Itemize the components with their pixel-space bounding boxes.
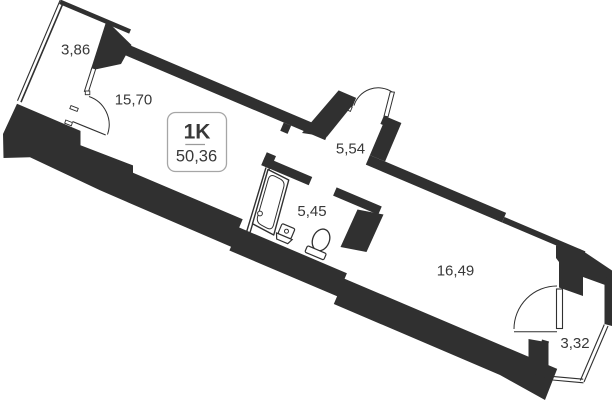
svg-text:16,49: 16,49	[437, 262, 475, 279]
svg-text:3,86: 3,86	[61, 42, 90, 59]
svg-text:5,54: 5,54	[336, 141, 365, 158]
svg-text:50,36: 50,36	[176, 148, 217, 166]
svg-text:5,45: 5,45	[297, 203, 326, 220]
svg-text:3,32: 3,32	[560, 335, 589, 352]
svg-text:15,70: 15,70	[115, 92, 153, 109]
svg-text:1K: 1K	[184, 121, 211, 144]
